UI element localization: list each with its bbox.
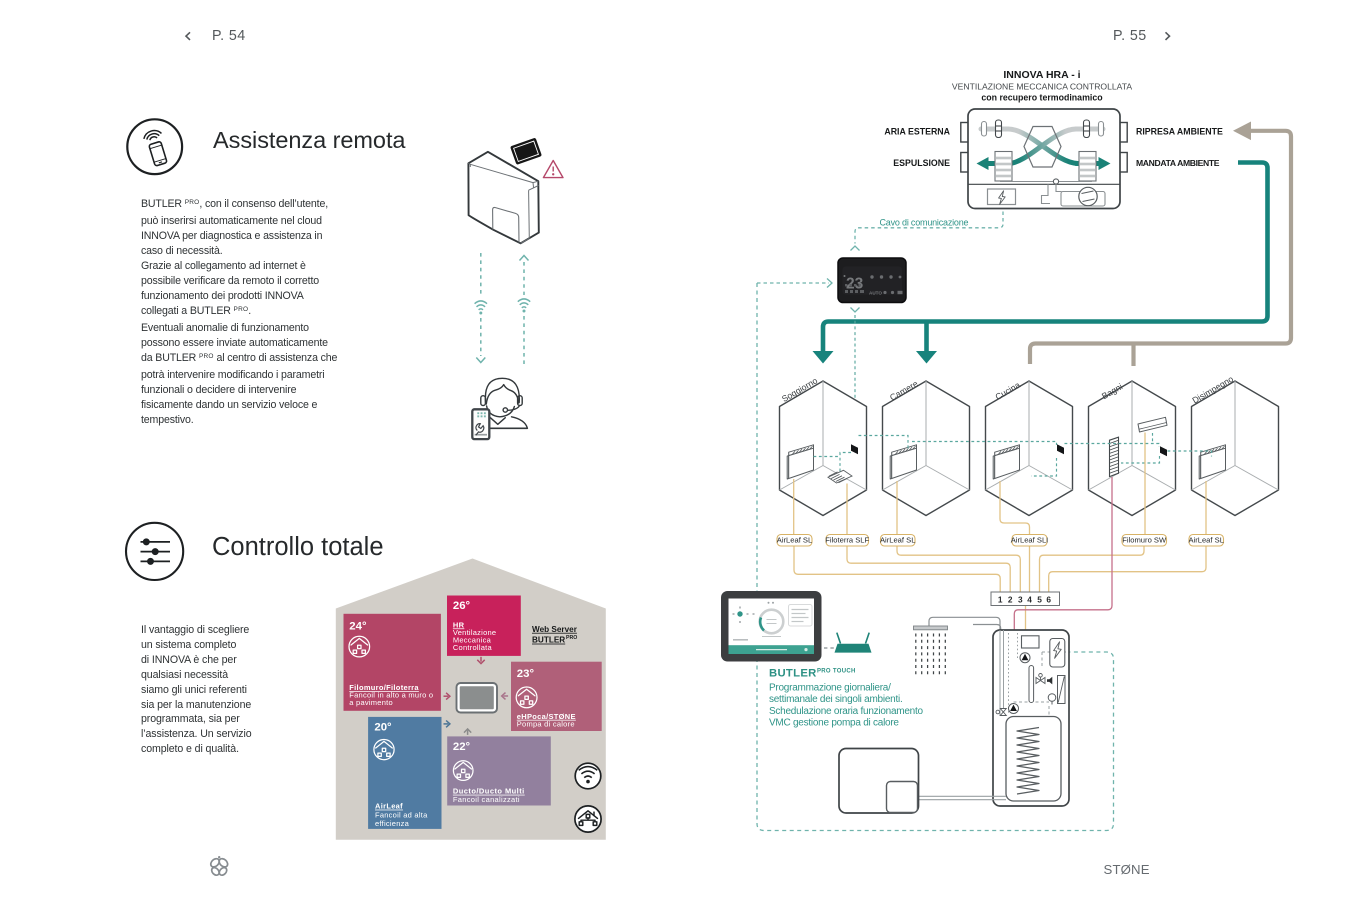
svg-text:Web Server: Web Server: [532, 625, 578, 634]
svg-text:AirLeaf: AirLeaf: [375, 802, 403, 811]
svg-text:Schedulazione oraria funzionam: Schedulazione oraria funzionamento: [769, 706, 924, 717]
svg-text:Pompa di calore: Pompa di calore: [517, 720, 575, 729]
svg-text:AirLeaf SL: AirLeaf SL: [880, 536, 915, 545]
svg-text:ARIA ESTERNA: ARIA ESTERNA: [884, 127, 950, 137]
svg-text:con recupero termodinamico: con recupero termodinamico: [981, 93, 1103, 103]
svg-text:2: 2: [1008, 595, 1013, 605]
svg-text:STØNE: STØNE: [1104, 862, 1150, 877]
svg-text:a pavimento: a pavimento: [349, 698, 393, 707]
svg-text:INNOVA HRA - i: INNOVA HRA - i: [1003, 69, 1080, 81]
svg-text:VENTILAZIONE MECCANICA CONTROL: VENTILAZIONE MECCANICA CONTROLLATA: [952, 82, 1132, 92]
svg-text:20°: 20°: [374, 722, 392, 734]
svg-text:Cavo di comunicazione: Cavo di comunicazione: [880, 218, 969, 228]
svg-text:AirLeaf SL: AirLeaf SL: [1188, 536, 1223, 545]
svg-text:AUTO: AUTO: [869, 291, 882, 296]
svg-text:1: 1: [998, 595, 1003, 605]
svg-text:24°: 24°: [349, 621, 367, 633]
svg-text:3: 3: [1018, 595, 1023, 605]
svg-text:VMC gestione pompa di calore: VMC gestione pompa di calore: [769, 718, 899, 729]
svg-text:AirLeaf SLI: AirLeaf SLI: [1011, 536, 1049, 545]
svg-text:ESPULSIONE: ESPULSIONE: [893, 158, 950, 168]
svg-text:Filoterra SLF: Filoterra SLF: [825, 536, 869, 545]
svg-text:23°: 23°: [517, 668, 535, 680]
svg-text:Controllata: Controllata: [453, 643, 493, 652]
svg-text:MANDATA AMBIENTE: MANDATA AMBIENTE: [1136, 158, 1220, 168]
svg-text:AirLeaf SL: AirLeaf SL: [777, 536, 812, 545]
svg-text:Fancoil canalizzati: Fancoil canalizzati: [453, 795, 520, 804]
svg-text:BUTLER: BUTLER: [769, 668, 817, 680]
svg-text:26°: 26°: [453, 600, 471, 612]
svg-text:4: 4: [1027, 595, 1032, 605]
svg-text:Filomuro SW: Filomuro SW: [1122, 536, 1167, 545]
svg-text:efficienza: efficienza: [375, 819, 410, 828]
svg-text:Programmazione giornaliera/: Programmazione giornaliera/: [769, 683, 891, 694]
svg-text:5: 5: [1037, 595, 1042, 605]
svg-text:settimanale dei singoli ambien: settimanale dei singoli ambienti.: [769, 694, 903, 705]
svg-text:PRO: PRO: [566, 635, 577, 641]
svg-text:6: 6: [1046, 595, 1051, 605]
svg-text:BUTLER: BUTLER: [532, 636, 565, 645]
svg-text:RIPRESA AMBIENTE: RIPRESA AMBIENTE: [1136, 127, 1223, 137]
svg-text:22°: 22°: [453, 741, 471, 753]
svg-text:PRO TOUCH: PRO TOUCH: [817, 669, 856, 675]
